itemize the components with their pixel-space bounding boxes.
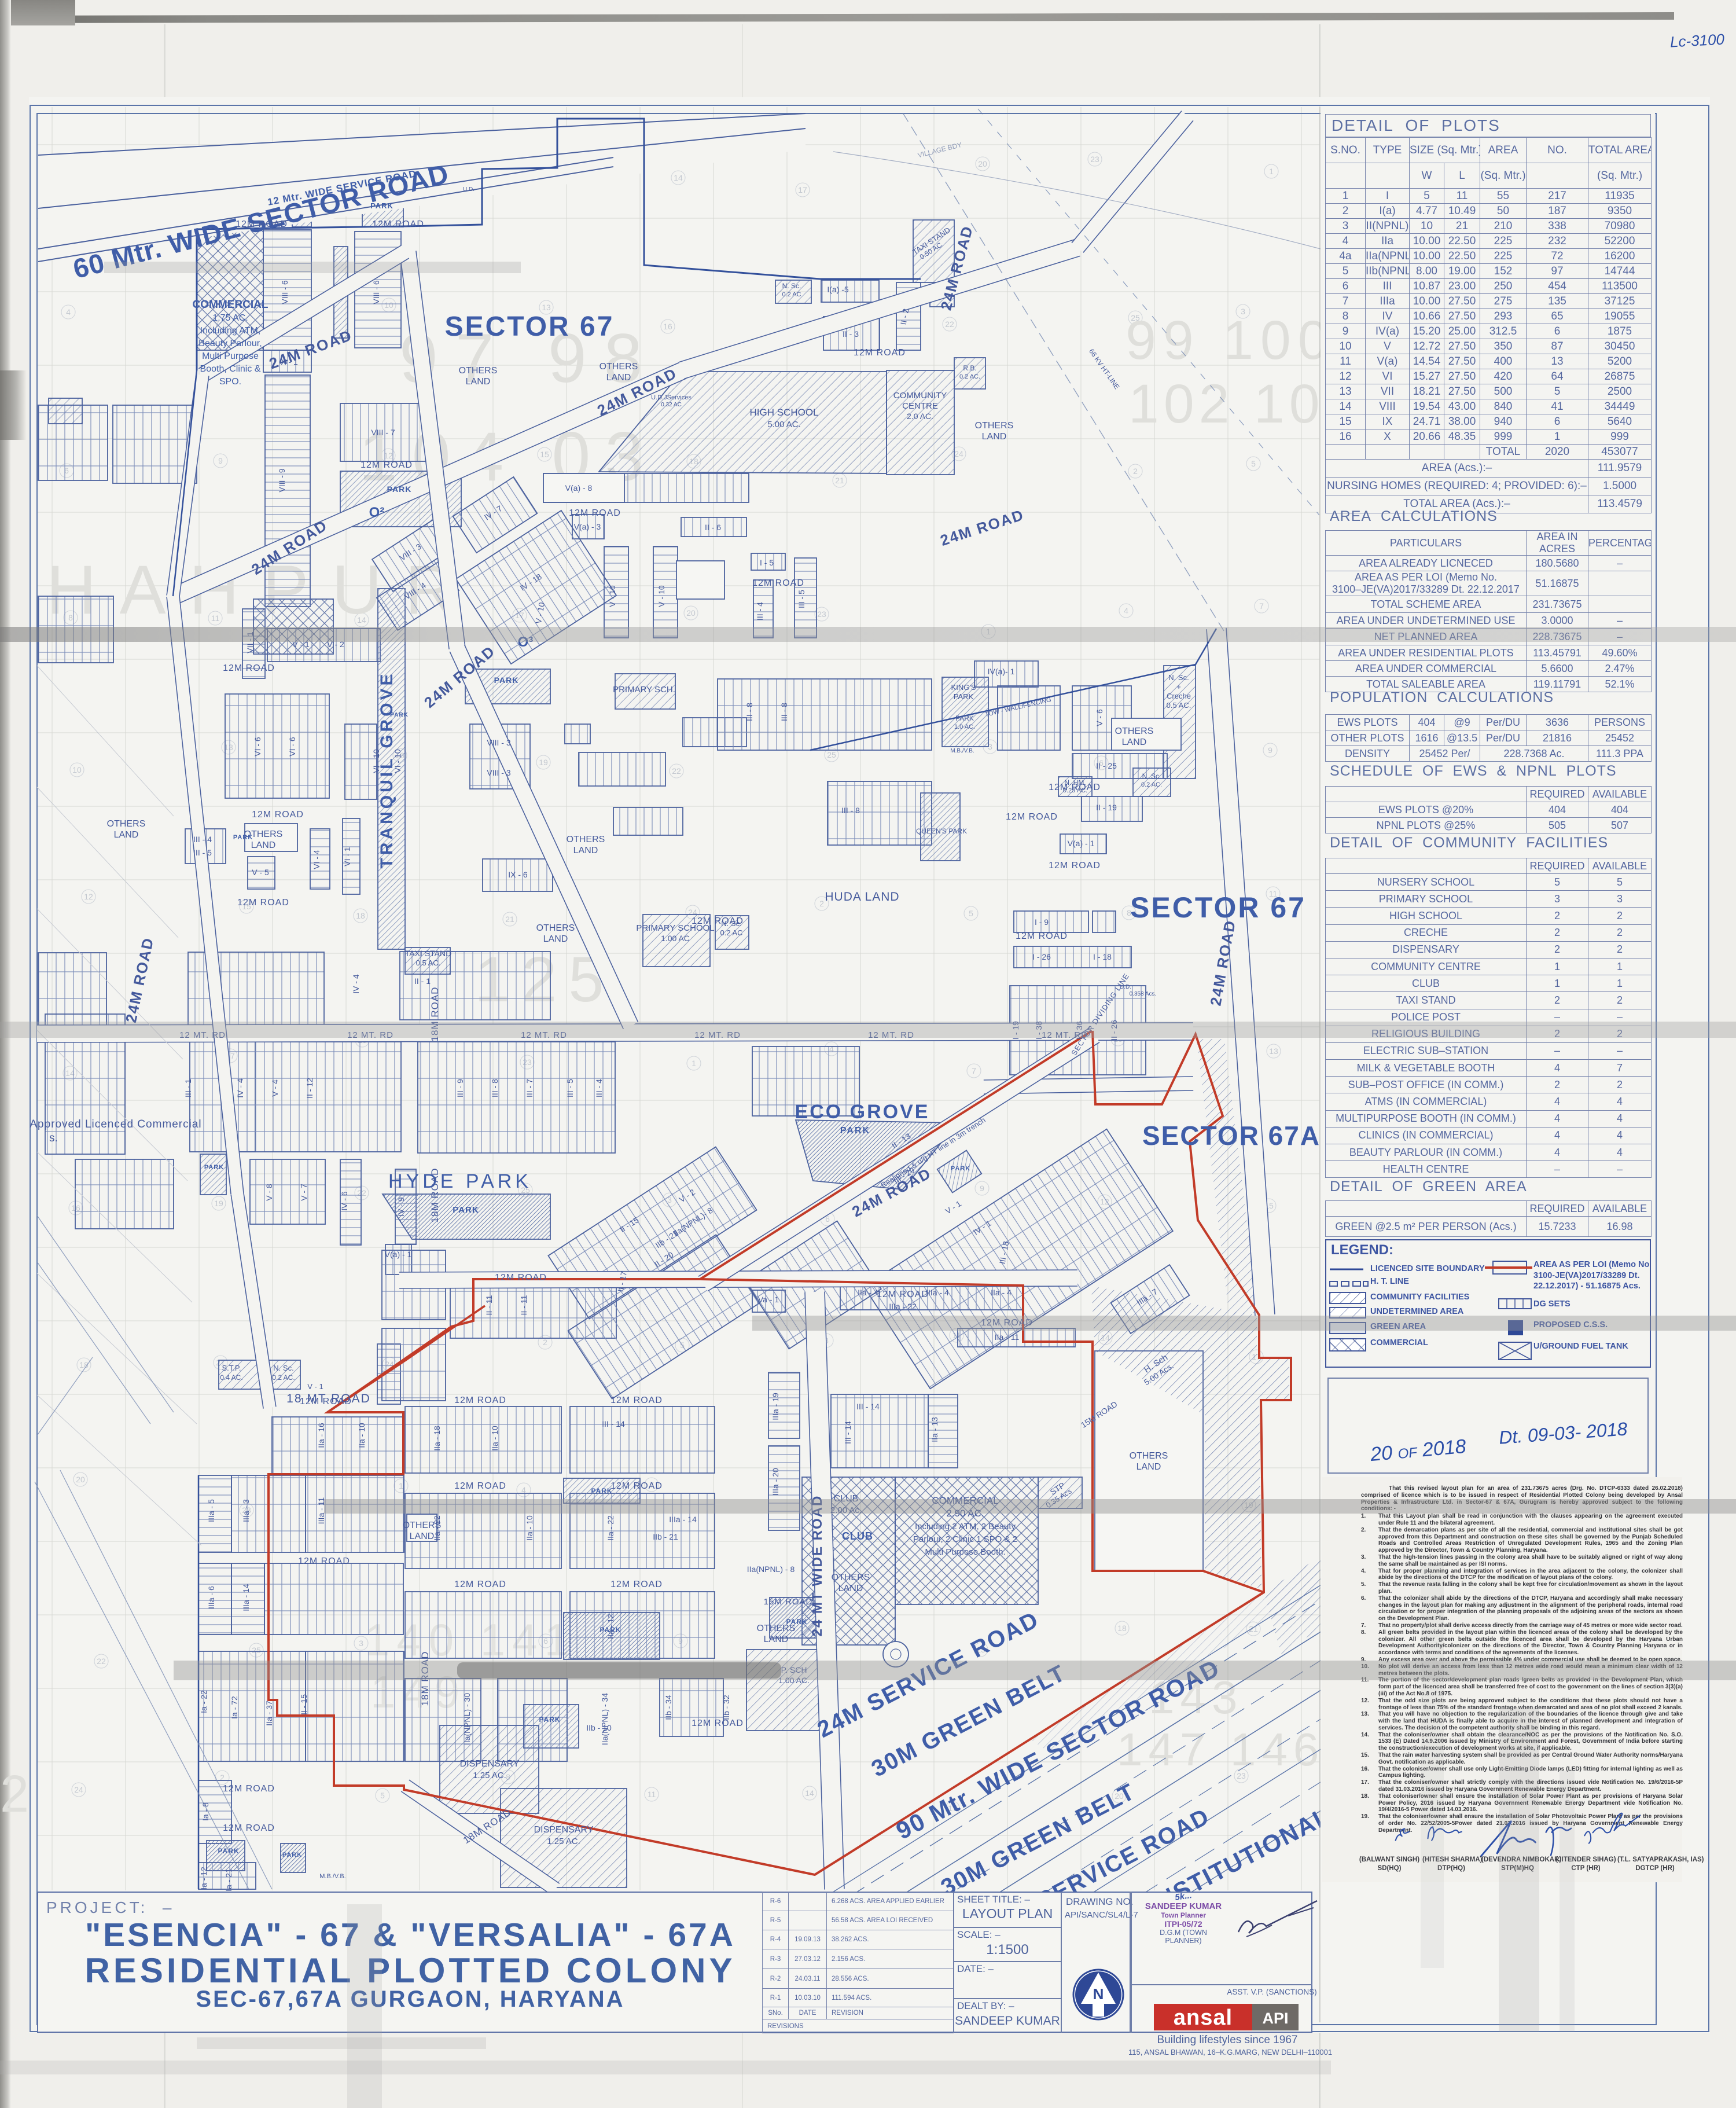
svg-text:12M ROAD: 12M ROAD	[610, 1395, 663, 1405]
svg-text:OTHERS: OTHERS	[536, 923, 575, 933]
svg-text:0.5 AC.: 0.5 AC.	[1167, 701, 1191, 710]
svg-text:9: 9	[218, 456, 223, 465]
svg-text:IV - 9: IV - 9	[396, 1197, 406, 1217]
svg-text:1.00 AC: 1.00 AC	[661, 934, 690, 943]
svg-text:IIIa - 14: IIIa - 14	[241, 1584, 251, 1611]
svg-text:PRIMARY SCHOOL: PRIMARY SCHOOL	[636, 923, 714, 933]
svg-text:V - 6: V - 6	[1095, 709, 1104, 726]
svg-text:IIb - 10: IIb - 10	[586, 1723, 612, 1732]
svg-text:25: 25	[827, 750, 836, 759]
svg-text:II - 3: II - 3	[843, 329, 859, 339]
svg-text:20: 20	[978, 159, 987, 168]
svg-text:1.25 AC.: 1.25 AC.	[547, 1837, 580, 1846]
svg-text:III - 9: III - 9	[455, 1079, 465, 1097]
svg-text:12M ROAD: 12M ROAD	[223, 1823, 275, 1833]
svg-text:U.D.JServices: U.D.JServices	[651, 394, 692, 401]
svg-text:N. Sc.: N. Sc.	[721, 919, 741, 928]
svg-text:HYDE PARK: HYDE PARK	[388, 1170, 532, 1192]
svg-text:12M ROAD: 12M ROAD	[237, 898, 289, 908]
svg-text:0.5 AC.: 0.5 AC.	[416, 958, 441, 967]
svg-text:IIa(NPNL) - 34: IIa(NPNL) - 34	[600, 1693, 609, 1745]
svg-text:20: 20	[76, 1475, 85, 1484]
svg-text:I - 18: I - 18	[1093, 952, 1112, 961]
svg-text:LAND: LAND	[764, 1635, 789, 1644]
svg-text:II - 11: II - 11	[519, 1295, 528, 1315]
svg-text:PARK: PARK	[591, 1487, 612, 1495]
svg-text:147 146: 147 146	[1117, 1724, 1325, 1775]
svg-text:15M ROAD: 15M ROAD	[764, 1597, 813, 1607]
svg-text:9: 9	[1268, 745, 1272, 755]
svg-text:OTHERS: OTHERS	[567, 835, 605, 844]
svg-text:HIGH SCHOOL: HIGH SCHOOL	[749, 407, 818, 418]
svg-text:LAND: LAND	[114, 830, 139, 840]
svg-text:TAXI STAND: TAXI STAND	[405, 949, 451, 958]
svg-text:IV - 4: IV - 4	[351, 974, 361, 994]
svg-text:III - 8: III - 8	[779, 703, 789, 721]
svg-text:9: 9	[980, 1184, 984, 1193]
svg-text:Multi Purpose Booth.: Multi Purpose Booth.	[925, 1547, 1005, 1557]
svg-text:0.4 AC.: 0.4 AC.	[220, 1373, 242, 1382]
svg-text:21: 21	[835, 476, 844, 485]
svg-text:12M ROAD: 12M ROAD	[223, 1784, 275, 1794]
svg-text:20: 20	[686, 608, 696, 618]
svg-text:III - 5: III - 5	[193, 848, 212, 857]
svg-text:12M ROAD: 12M ROAD	[854, 348, 906, 358]
svg-text:VI - 1: VI - 1	[343, 847, 352, 866]
svg-text:LAND: LAND	[838, 1584, 863, 1593]
svg-text:API: API	[1262, 2010, 1288, 2027]
svg-text:III - 4: III - 4	[193, 835, 212, 844]
svg-text:IIIa - 4: IIIa - 4	[926, 1288, 949, 1297]
svg-text:12M ROAD: 12M ROAD	[454, 1395, 506, 1405]
svg-text:III - 8: III - 8	[745, 703, 754, 721]
svg-text:IV - 4: IV - 4	[236, 1078, 245, 1098]
svg-text:VI - 10: VI - 10	[393, 749, 402, 773]
svg-text:COMMERCIAL: COMMERCIAL	[193, 299, 269, 311]
svg-text:OTHERS: OTHERS	[599, 362, 638, 372]
svg-text:IIa - 16: IIa - 16	[317, 1423, 326, 1448]
svg-text:III - 8: III - 8	[490, 1079, 499, 1097]
svg-text:VI - 4: VI - 4	[312, 850, 321, 869]
svg-text:PRIMARY SCH.: PRIMARY SCH.	[613, 685, 675, 695]
svg-text:PARK: PARK	[204, 1164, 224, 1171]
svg-text:+: +	[1176, 682, 1181, 691]
svg-text:IIa(NPNL) - 8: IIa(NPNL) - 8	[747, 1565, 795, 1574]
svg-text:PARK: PARK	[539, 1716, 560, 1724]
svg-text:1: 1	[1269, 167, 1274, 176]
svg-text:24 MT WIDE ROAD: 24 MT WIDE ROAD	[810, 1495, 825, 1637]
svg-text:12M ROAD: 12M ROAD	[372, 219, 424, 229]
svg-text:IIa(NPNL) - 30: IIa(NPNL) - 30	[462, 1693, 472, 1745]
svg-text:LAND: LAND	[466, 377, 491, 387]
svg-text:14: 14	[805, 1789, 814, 1798]
svg-text:12M ROAD: 12M ROAD	[610, 1481, 663, 1491]
svg-text:Va - 1: Va - 1	[758, 1295, 779, 1304]
svg-text:S.T.P.: S.T.P.	[222, 1364, 241, 1372]
svg-text:N. Sc.: N. Sc.	[1142, 772, 1161, 780]
svg-text:V - 5: V - 5	[252, 868, 269, 877]
svg-text:III - 7: III - 7	[525, 1079, 534, 1097]
svg-text:7: 7	[1259, 601, 1264, 611]
svg-text:PARK: PARK	[840, 1126, 870, 1136]
svg-text:VI - 6: VI - 6	[253, 737, 262, 756]
svg-text:OTHERS: OTHERS	[459, 366, 498, 376]
svg-text:Booth, Clinic &: Booth, Clinic &	[200, 364, 261, 374]
svg-text:7: 7	[972, 1066, 976, 1075]
svg-text:X - 1: X - 1	[281, 357, 298, 366]
svg-text:LAND: LAND	[251, 840, 276, 850]
svg-text:IIa - 22: IIa - 22	[432, 1515, 442, 1541]
svg-text:12M ROAD: 12M ROAD	[1006, 812, 1058, 822]
svg-text:Including ATM,: Including ATM,	[200, 326, 261, 336]
svg-text:O²: O²	[369, 505, 385, 520]
svg-text:IIa - 13: IIa - 13	[930, 1417, 939, 1442]
svg-text:LAND: LAND	[543, 934, 568, 944]
svg-text:4: 4	[66, 307, 71, 317]
svg-text:V(a) - 8: V(a) - 8	[565, 483, 593, 493]
svg-text:I - 26: I - 26	[1032, 952, 1051, 961]
svg-text:I - 5: I - 5	[760, 558, 774, 567]
svg-text:3: 3	[359, 1639, 363, 1648]
svg-text:10: 10	[72, 765, 82, 774]
svg-text:PARK: PARK	[218, 1847, 239, 1855]
svg-text:II - 19: II - 19	[1096, 803, 1117, 812]
svg-text:N: N	[1093, 1985, 1104, 2003]
svg-text:DISPENSARY: DISPENSARY	[534, 1825, 594, 1835]
svg-text:4: 4	[1124, 606, 1128, 615]
svg-text:18M ROAD: 18M ROAD	[429, 1168, 440, 1223]
svg-text:12M ROAD: 12M ROAD	[1016, 931, 1068, 941]
svg-text:LAND: LAND	[410, 1532, 435, 1541]
svg-text:13: 13	[542, 303, 551, 312]
svg-text:IIIa - 3: IIIa - 3	[241, 1499, 251, 1522]
svg-text:1.75 AC.: 1.75 AC.	[212, 313, 248, 323]
svg-text:5: 5	[1251, 459, 1256, 468]
svg-text:5: 5	[380, 1791, 385, 1800]
svg-text:OTHERS: OTHERS	[1130, 1451, 1168, 1461]
svg-text:IIb - 32: IIb - 32	[722, 1695, 731, 1720]
svg-text:IIb - 21: IIb - 21	[653, 1532, 678, 1541]
svg-text:IIa - 10: IIa - 10	[525, 1515, 534, 1541]
svg-text:Multi Purpose: Multi Purpose	[202, 351, 259, 361]
svg-text:II - 25: II - 25	[1096, 761, 1117, 770]
svg-text:Ia - 8: Ia - 8	[201, 1802, 210, 1821]
svg-text:COMMUNITY: COMMUNITY	[893, 391, 947, 401]
svg-text:22: 22	[945, 319, 954, 329]
svg-text:VIII - 6: VIII - 6	[280, 280, 289, 304]
svg-text:24: 24	[74, 1785, 83, 1794]
svg-text:PARK: PARK	[494, 675, 519, 685]
svg-text:Ia - 72: Ia - 72	[230, 1696, 239, 1719]
svg-text:V - 10: V - 10	[657, 585, 666, 607]
svg-text:III - 4: III - 4	[755, 602, 764, 620]
svg-text:VI - 6: VI - 6	[288, 737, 297, 756]
svg-text:IIa - 10: IIa - 10	[490, 1426, 499, 1451]
svg-text:2: 2	[0, 1765, 41, 1823]
svg-text:0.2 AC.: 0.2 AC.	[959, 373, 980, 380]
svg-text:Parlour, 2 Clinic 1 SPO & 2: Parlour, 2 Clinic 1 SPO & 2	[913, 1534, 1017, 1544]
svg-text:V - 8: V - 8	[264, 1184, 274, 1201]
svg-text:III - 14: III - 14	[602, 1419, 625, 1428]
svg-text:R.B.: R.B.	[963, 364, 976, 372]
svg-text:99 100: 99 100	[1126, 310, 1336, 371]
svg-text:21: 21	[505, 915, 514, 924]
svg-text:KING'S: KING'S	[951, 683, 976, 692]
svg-text:Ia - 12: Ia - 12	[199, 1867, 208, 1890]
svg-text:24: 24	[954, 449, 963, 458]
svg-text:PARK: PARK	[955, 714, 974, 722]
svg-text:0.2 AC.: 0.2 AC.	[1141, 781, 1162, 788]
svg-text:OTHERS: OTHERS	[832, 1573, 870, 1582]
svg-text:12M ROAD: 12M ROAD	[692, 1718, 744, 1728]
svg-text:OTHERS: OTHERS	[975, 421, 1014, 431]
svg-text:LAND: LAND	[1122, 737, 1147, 747]
svg-text:IV(a)- 1: IV(a)- 1	[988, 667, 1015, 676]
svg-text:1.0 AC.: 1.0 AC.	[954, 724, 975, 730]
svg-text:1.25 AC.: 1.25 AC.	[473, 1771, 506, 1780]
svg-text:17: 17	[798, 185, 807, 194]
svg-text:12M ROAD: 12M ROAD	[752, 578, 804, 588]
svg-text:16: 16	[663, 322, 672, 331]
svg-text:PARK: PARK	[370, 201, 393, 210]
svg-text:V(a) - 3: V(a) - 3	[574, 522, 601, 531]
svg-text:IIIa - 6: IIIa - 6	[207, 1586, 216, 1609]
svg-text:I - 9: I - 9	[1035, 917, 1049, 927]
svg-text:III - 5: III - 5	[565, 1079, 575, 1097]
svg-text:1: 1	[692, 1059, 696, 1068]
svg-text:IIIa - 14: IIIa - 14	[669, 1515, 697, 1524]
svg-text:PARK: PARK	[282, 1852, 302, 1859]
svg-text:IIa - 22: IIa - 22	[606, 1515, 615, 1541]
svg-text:Including 2 ATM, 2 Beauty: Including 2 ATM, 2 Beauty	[915, 1522, 1016, 1532]
svg-text:M.B./V.B.: M.B./V.B.	[319, 1873, 345, 1880]
svg-text:12: 12	[84, 892, 93, 901]
svg-text:12M ROAD: 12M ROAD	[877, 1290, 929, 1299]
svg-text:12M ROAD: 12M ROAD	[223, 663, 275, 673]
svg-text:II - 12: II - 12	[305, 1078, 314, 1099]
svg-text:12M ROAD: 12M ROAD	[298, 1556, 350, 1566]
svg-text:IIa - 10: IIa - 10	[357, 1423, 366, 1448]
svg-text:2: 2	[819, 899, 824, 908]
svg-text:PARK: PARK	[954, 692, 974, 701]
svg-text:VI - 10: VI - 10	[372, 749, 381, 773]
svg-text:III - 1: III - 1	[183, 1079, 193, 1097]
svg-text:N. Sc.: N. Sc.	[1168, 673, 1189, 682]
svg-text:LAND: LAND	[606, 373, 631, 383]
svg-text:Approved Licenced Commercial: Approved Licenced Commercial	[30, 1118, 201, 1130]
svg-text:V - 7: V - 7	[299, 1184, 308, 1201]
svg-text:0.358 Acs.: 0.358 Acs.	[1130, 991, 1157, 997]
svg-text:0.25 AC.: 0.25 AC.	[1063, 787, 1087, 794]
svg-text:IIa - 18: IIa - 18	[432, 1426, 442, 1451]
svg-text:IIa - 4: IIa - 4	[858, 1288, 878, 1297]
svg-text:III - 14: III - 14	[856, 1402, 880, 1411]
svg-text:V - 4: V - 4	[270, 1079, 279, 1097]
svg-text:U.D.: U.D.	[1120, 984, 1131, 990]
svg-text:VIII - 6: VIII - 6	[372, 280, 381, 304]
svg-text:IIa - 12: IIa - 12	[606, 1614, 615, 1639]
svg-text:VIII - 3: VIII - 3	[487, 768, 510, 777]
svg-text:ECO GROVE: ECO GROVE	[795, 1101, 930, 1123]
svg-text:Creche: Creche	[1167, 692, 1191, 700]
svg-text:N. Sc.: N. Sc.	[273, 1364, 293, 1372]
svg-text:V - 10: V - 10	[608, 585, 617, 607]
svg-text:SECTOR 67: SECTOR 67	[445, 311, 615, 342]
svg-text:LAND: LAND	[982, 432, 1007, 442]
svg-text:23: 23	[817, 609, 826, 619]
svg-text:5.00 AC.: 5.00 AC.	[767, 420, 801, 429]
svg-text:N. Sc.: N. Sc.	[782, 282, 801, 290]
svg-text:IX - 6: IX - 6	[508, 870, 528, 879]
svg-text:II - 11: II - 11	[484, 1295, 494, 1315]
svg-text:12M ROAD: 12M ROAD	[300, 1397, 352, 1406]
svg-text:V - 1: V - 1	[307, 1382, 323, 1391]
svg-text:12M ROAD: 12M ROAD	[361, 460, 413, 470]
svg-text:18: 18	[1117, 1624, 1127, 1633]
svg-text:LAND: LAND	[573, 846, 598, 855]
svg-text:VIII - 7: VIII - 7	[371, 428, 395, 437]
svg-text:13: 13	[1269, 1046, 1278, 1056]
svg-text:IIIa - 5: IIIa - 5	[207, 1499, 216, 1522]
svg-text:N. HM.: N. HM.	[1064, 778, 1086, 787]
svg-text:2: 2	[1133, 467, 1138, 476]
svg-text:V(a) - 1: V(a) - 1	[385, 1250, 412, 1259]
svg-text:SPO.: SPO.	[219, 377, 241, 387]
svg-text:II - 15: II - 15	[299, 1694, 308, 1715]
svg-text:IV - 6: IV - 6	[340, 1191, 349, 1211]
svg-text:IIIa - 20: IIIa - 20	[771, 1468, 780, 1496]
svg-text:12M ROAD: 12M ROAD	[454, 1580, 506, 1589]
svg-text:M.B./V.B.: M.B./V.B.	[950, 748, 974, 754]
svg-text:DISPENSARY: DISPENSARY	[460, 1759, 520, 1769]
svg-text:IIIa - 22: IIIa - 22	[889, 1302, 917, 1311]
svg-text:23: 23	[1090, 155, 1099, 164]
svg-text:IIa - 4: IIa - 4	[991, 1288, 1012, 1297]
svg-text:CENTRE: CENTRE	[902, 401, 938, 411]
svg-text:Beauty Parlour,: Beauty Parlour,	[198, 339, 262, 348]
svg-text:HUDA LAND: HUDA LAND	[825, 890, 899, 904]
svg-text:PARK: PARK	[453, 1205, 479, 1215]
svg-text:II - 6: II - 6	[705, 523, 721, 532]
svg-text:PARK: PARK	[951, 1165, 970, 1172]
svg-text:Ia - 22: Ia - 22	[199, 1690, 208, 1713]
svg-text:PARK: PARK	[786, 1618, 807, 1626]
svg-text:LAND: LAND	[1137, 1462, 1161, 1472]
svg-text:12M ROAD: 12M ROAD	[252, 810, 304, 820]
svg-text:19: 19	[214, 1199, 223, 1208]
svg-text:0.2 AC: 0.2 AC	[720, 928, 742, 937]
svg-text:12M ROAD: 12M ROAD	[610, 1580, 663, 1589]
svg-text:12M ROAD: 12M ROAD	[495, 1273, 547, 1283]
svg-text:IIb - 34: IIb - 34	[664, 1695, 673, 1720]
svg-text:0.2 AC.: 0.2 AC.	[272, 1373, 295, 1382]
svg-text:PARK: PARK	[233, 834, 253, 841]
svg-text:CLUB: CLUB	[842, 1530, 873, 1542]
svg-text:IIIa - 19: IIIa - 19	[771, 1393, 780, 1420]
svg-text:III - 8: III - 8	[841, 806, 860, 815]
svg-text:12M ROAD: 12M ROAD	[454, 1481, 506, 1491]
svg-text:V(a) - 1: V(a) - 1	[1068, 839, 1095, 848]
svg-text:22: 22	[97, 1657, 106, 1666]
svg-text:III - 14: III - 14	[843, 1421, 852, 1444]
svg-text:U.D.: U.D.	[463, 186, 475, 193]
svg-text:s.: s.	[49, 1132, 58, 1144]
svg-text:2.0 AC.: 2.0 AC.	[907, 412, 933, 421]
svg-text:III - 5: III - 5	[797, 590, 806, 608]
svg-text:18: 18	[356, 911, 365, 920]
svg-text:PARK: PARK	[387, 484, 412, 494]
svg-text:12M ROAD: 12M ROAD	[569, 508, 621, 518]
svg-text:PARK: PARK	[390, 712, 409, 718]
svg-text:II - 1: II - 1	[414, 976, 431, 986]
svg-text:III - 4: III - 4	[594, 1079, 604, 1097]
svg-text:14: 14	[674, 173, 683, 182]
svg-text:12M ROAD: 12M ROAD	[1049, 861, 1101, 871]
svg-text:QUEEN'S PARK: QUEEN'S PARK	[916, 827, 967, 835]
svg-text:I(a) -5: I(a) -5	[827, 285, 849, 294]
svg-text:SECTOR 67: SECTOR 67	[1130, 891, 1306, 924]
svg-text:5: 5	[969, 909, 973, 918]
svg-text:OTHERS: OTHERS	[1115, 726, 1154, 736]
svg-text:11: 11	[648, 1790, 656, 1799]
svg-text:VIII - 3: VIII - 3	[487, 738, 510, 747]
svg-text:22: 22	[672, 766, 681, 776]
svg-text:12M ROAD: 12M ROAD	[236, 219, 288, 229]
svg-text:ansal: ansal	[1174, 2006, 1233, 2030]
svg-text:IIa - 37: IIa - 37	[264, 1701, 274, 1726]
svg-text:0.32 AC: 0.32 AC	[661, 402, 682, 408]
svg-text:VIII - 9: VIII - 9	[277, 468, 286, 492]
svg-text:19: 19	[539, 758, 548, 767]
svg-text:IIa - 11: IIa - 11	[995, 1332, 1020, 1342]
svg-text:Ia - 21: Ia - 21	[224, 1868, 233, 1892]
svg-text:OTHERS: OTHERS	[107, 819, 146, 829]
svg-text:SECTOR 67A: SECTOR 67A	[1142, 1121, 1321, 1151]
svg-text:0.2 AC: 0.2 AC	[782, 291, 801, 298]
svg-text:2: 2	[543, 1338, 547, 1347]
